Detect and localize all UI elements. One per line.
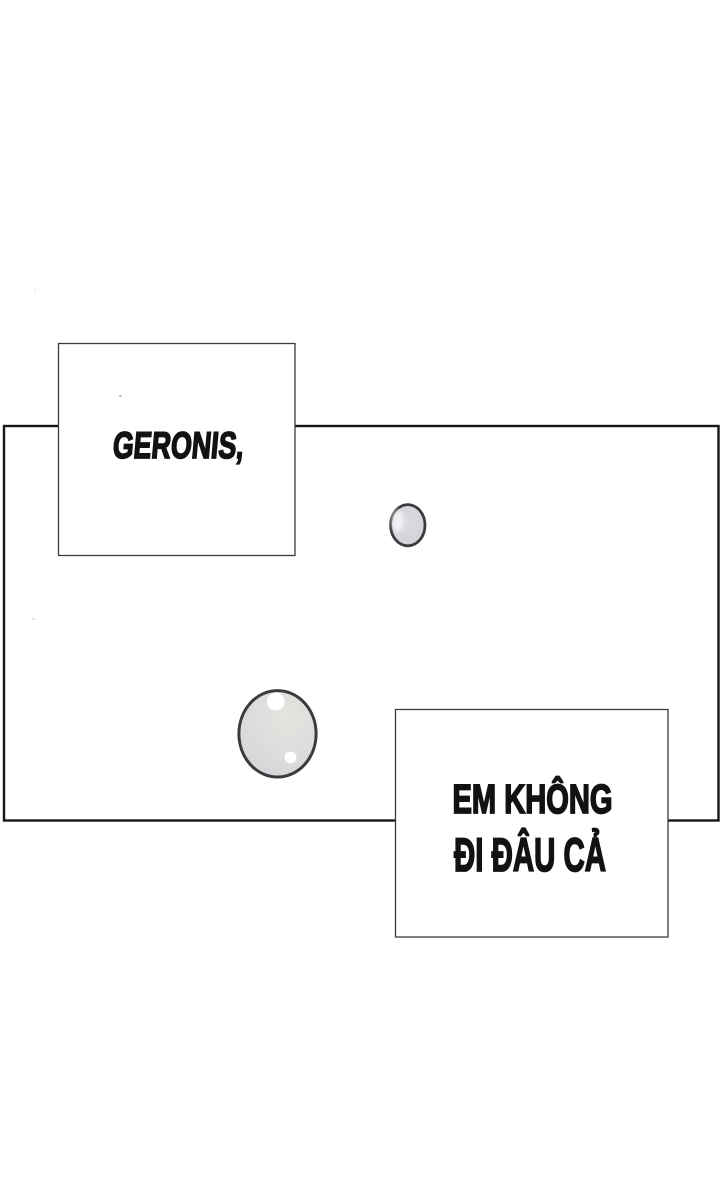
svg-text:ĐI ĐÂU CẢ: ĐI ĐÂU CẢ bbox=[454, 827, 606, 882]
svg-text:GERONIS,: GERONIS, bbox=[111, 424, 246, 466]
svg-text:EM KHÔNG: EM KHÔNG bbox=[453, 776, 613, 822]
